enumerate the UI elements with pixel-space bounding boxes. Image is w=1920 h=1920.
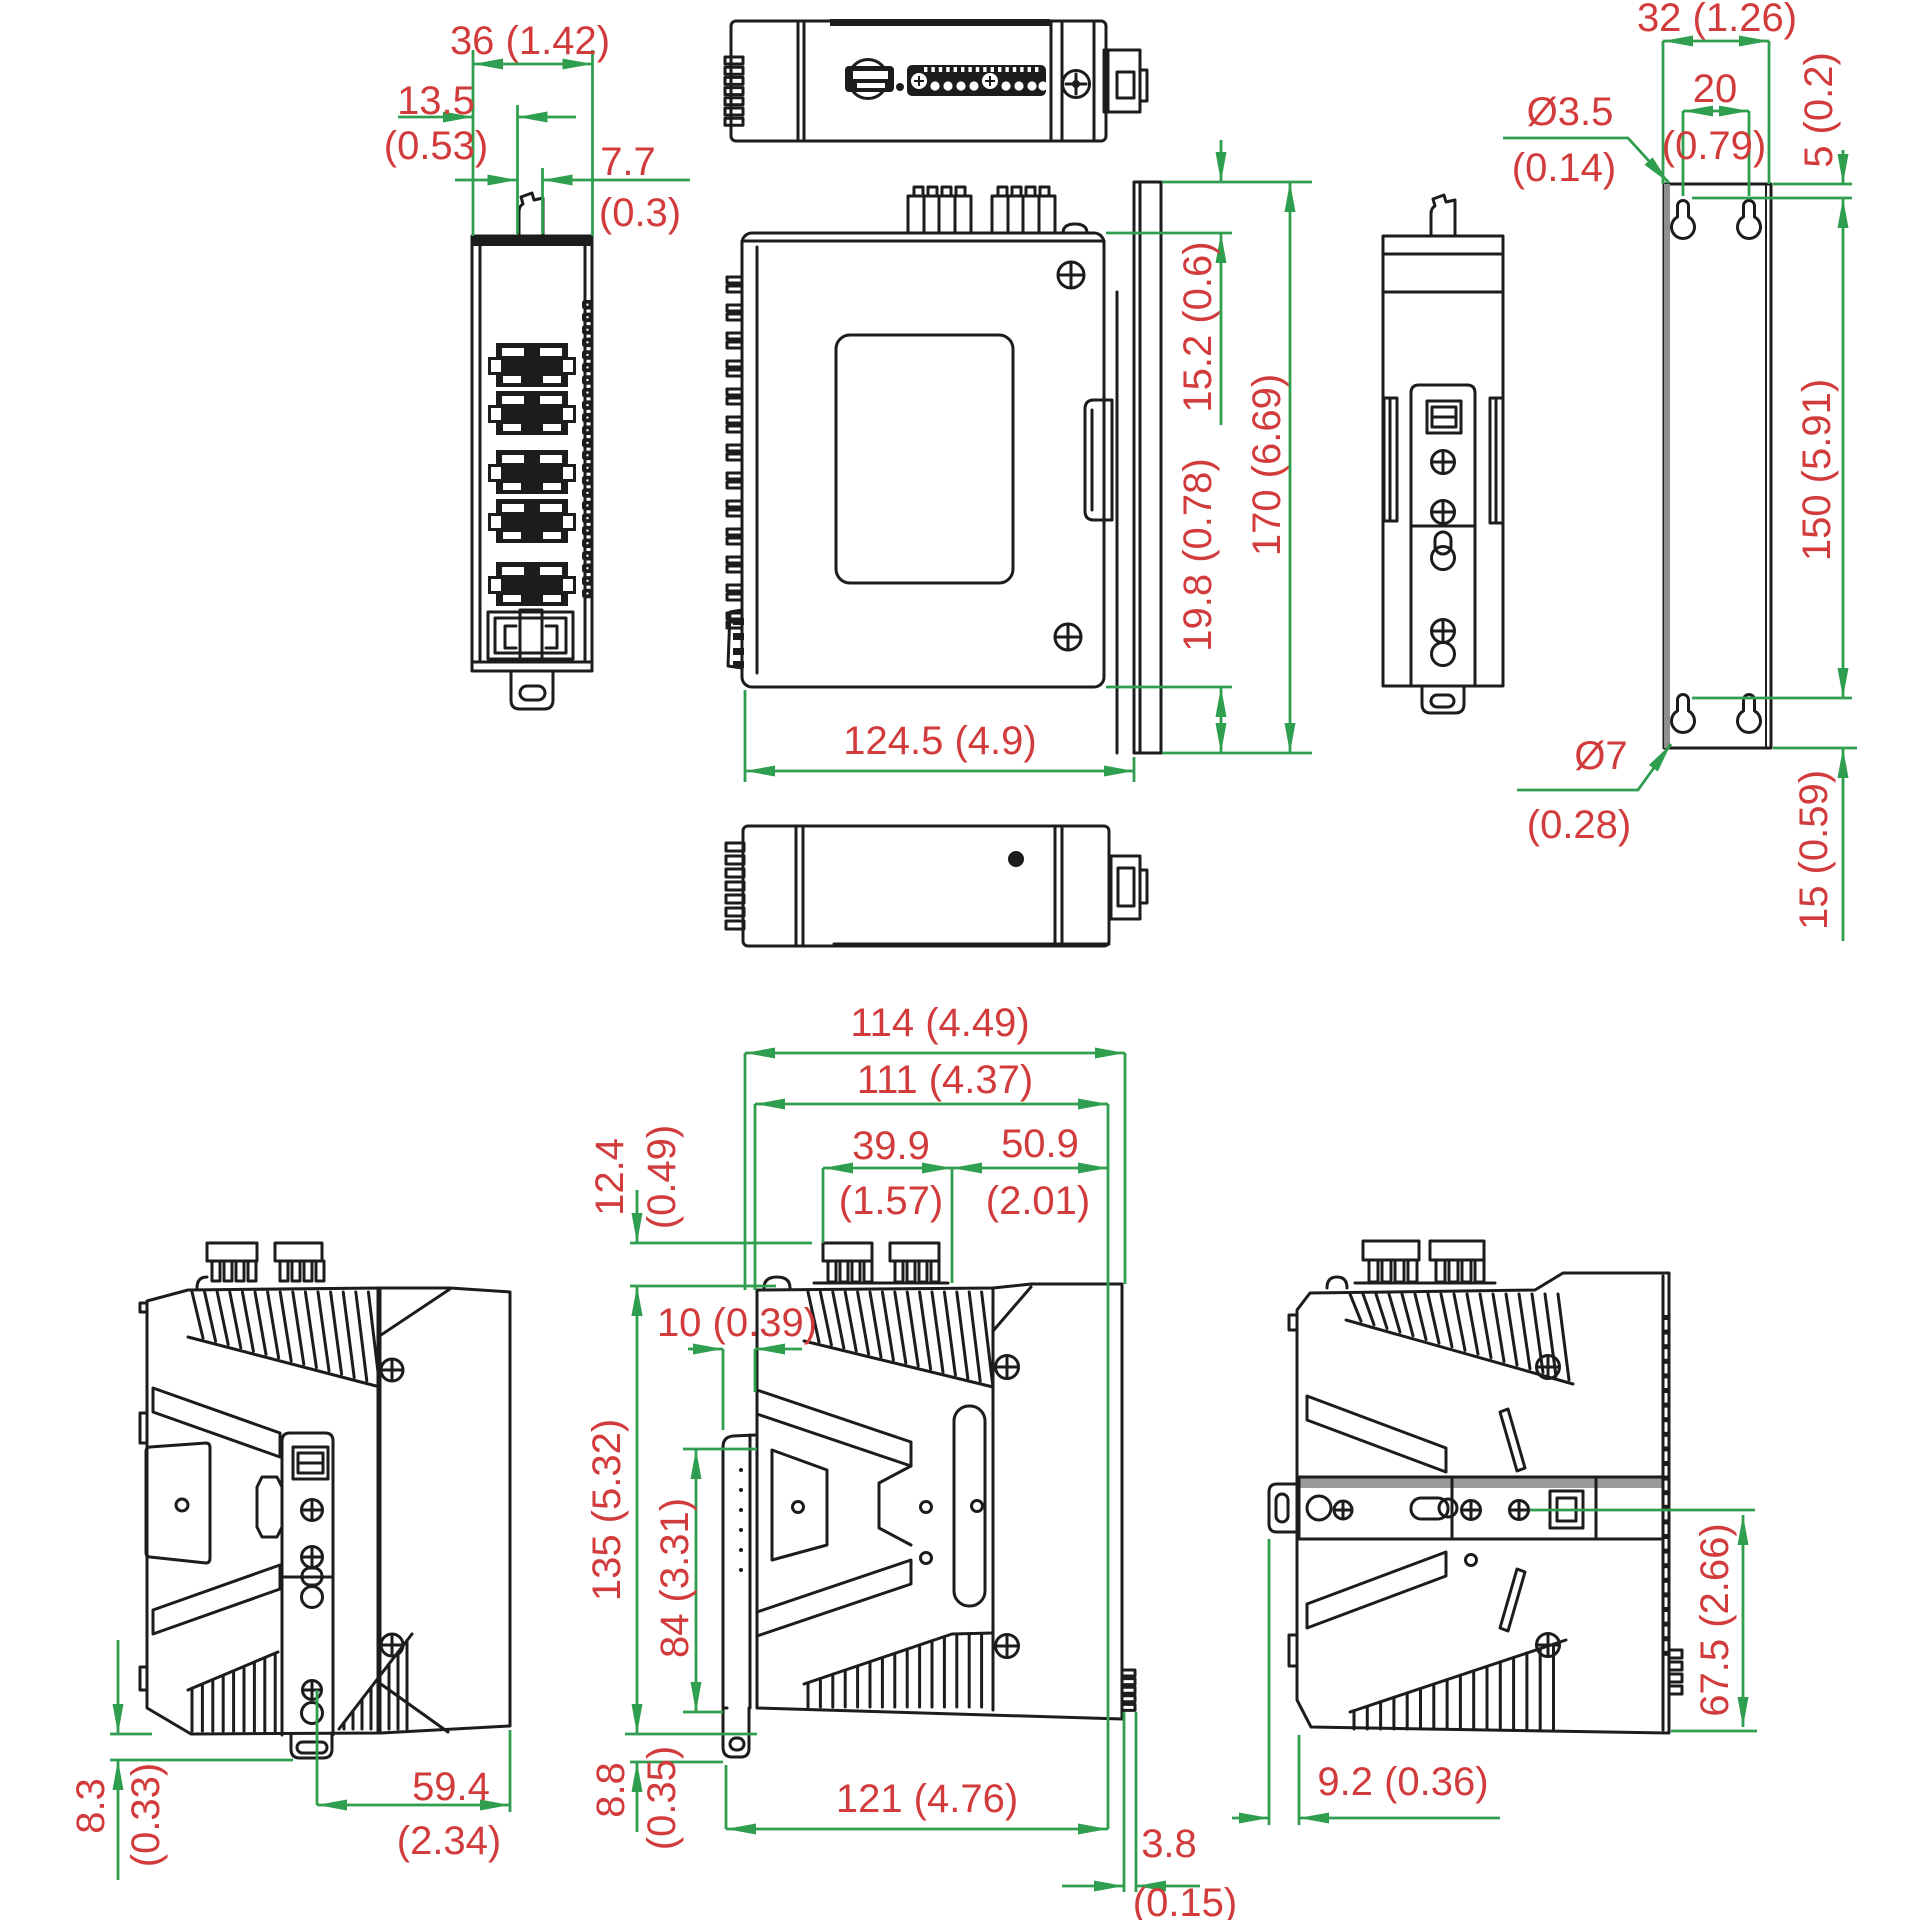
svg-text:121 (4.76): 121 (4.76) (836, 1777, 1018, 1821)
svg-text:(0.35): (0.35) (640, 1746, 684, 1851)
svg-text:(2.34): (2.34) (397, 1819, 502, 1863)
svg-text:7.7: 7.7 (600, 140, 656, 184)
svg-text:5 (0.2): 5 (0.2) (1797, 52, 1841, 168)
svg-text:10 (0.39): 10 (0.39) (657, 1301, 817, 1345)
svg-text:50.9: 50.9 (1001, 1122, 1079, 1166)
svg-text:(0.3): (0.3) (599, 191, 681, 235)
svg-text:12.4: 12.4 (588, 1138, 632, 1216)
svg-text:8.8: 8.8 (589, 1762, 633, 1818)
svg-text:19.8 (0.78): 19.8 (0.78) (1176, 458, 1220, 651)
svg-text:Ø3.5: Ø3.5 (1527, 90, 1614, 134)
svg-text:84 (3.31): 84 (3.31) (653, 1498, 697, 1658)
svg-text:15 (0.59): 15 (0.59) (1792, 770, 1836, 930)
svg-text:(0.28): (0.28) (1527, 803, 1632, 847)
svg-text:39.9: 39.9 (852, 1124, 930, 1168)
svg-text:(0.79): (0.79) (1662, 124, 1767, 168)
svg-text:15.2 (0.6): 15.2 (0.6) (1176, 241, 1220, 412)
svg-text:67.5 (2.66): 67.5 (2.66) (1693, 1523, 1737, 1716)
svg-text:8.3: 8.3 (69, 1778, 113, 1834)
svg-text:(0.33): (0.33) (124, 1763, 168, 1868)
svg-text:124.5 (4.9): 124.5 (4.9) (843, 719, 1036, 763)
svg-text:(1.57): (1.57) (839, 1179, 944, 1223)
svg-text:(0.14): (0.14) (1512, 146, 1617, 190)
svg-text:111 (4.37): 111 (4.37) (857, 1058, 1033, 1102)
svg-text:20: 20 (1693, 67, 1738, 111)
svg-text:59.4: 59.4 (412, 1765, 490, 1809)
svg-text:9.2 (0.36): 9.2 (0.36) (1317, 1760, 1488, 1804)
svg-text:150 (5.91): 150 (5.91) (1795, 379, 1839, 561)
svg-text:(2.01): (2.01) (986, 1179, 1091, 1223)
svg-text:32 (1.26): 32 (1.26) (1637, 0, 1797, 40)
svg-text:3.8: 3.8 (1141, 1822, 1197, 1866)
svg-text:170 (6.69): 170 (6.69) (1245, 374, 1289, 556)
svg-text:(0.15): (0.15) (1133, 1881, 1238, 1920)
svg-text:(0.49): (0.49) (640, 1125, 684, 1230)
svg-text:(0.53): (0.53) (384, 124, 489, 168)
svg-text:Ø7: Ø7 (1574, 734, 1627, 778)
svg-text:13.5: 13.5 (397, 79, 475, 123)
svg-text:114 (4.49): 114 (4.49) (850, 1001, 1029, 1045)
svg-text:135 (5.32): 135 (5.32) (585, 1419, 629, 1601)
svg-text:36 (1.42): 36 (1.42) (450, 19, 610, 63)
